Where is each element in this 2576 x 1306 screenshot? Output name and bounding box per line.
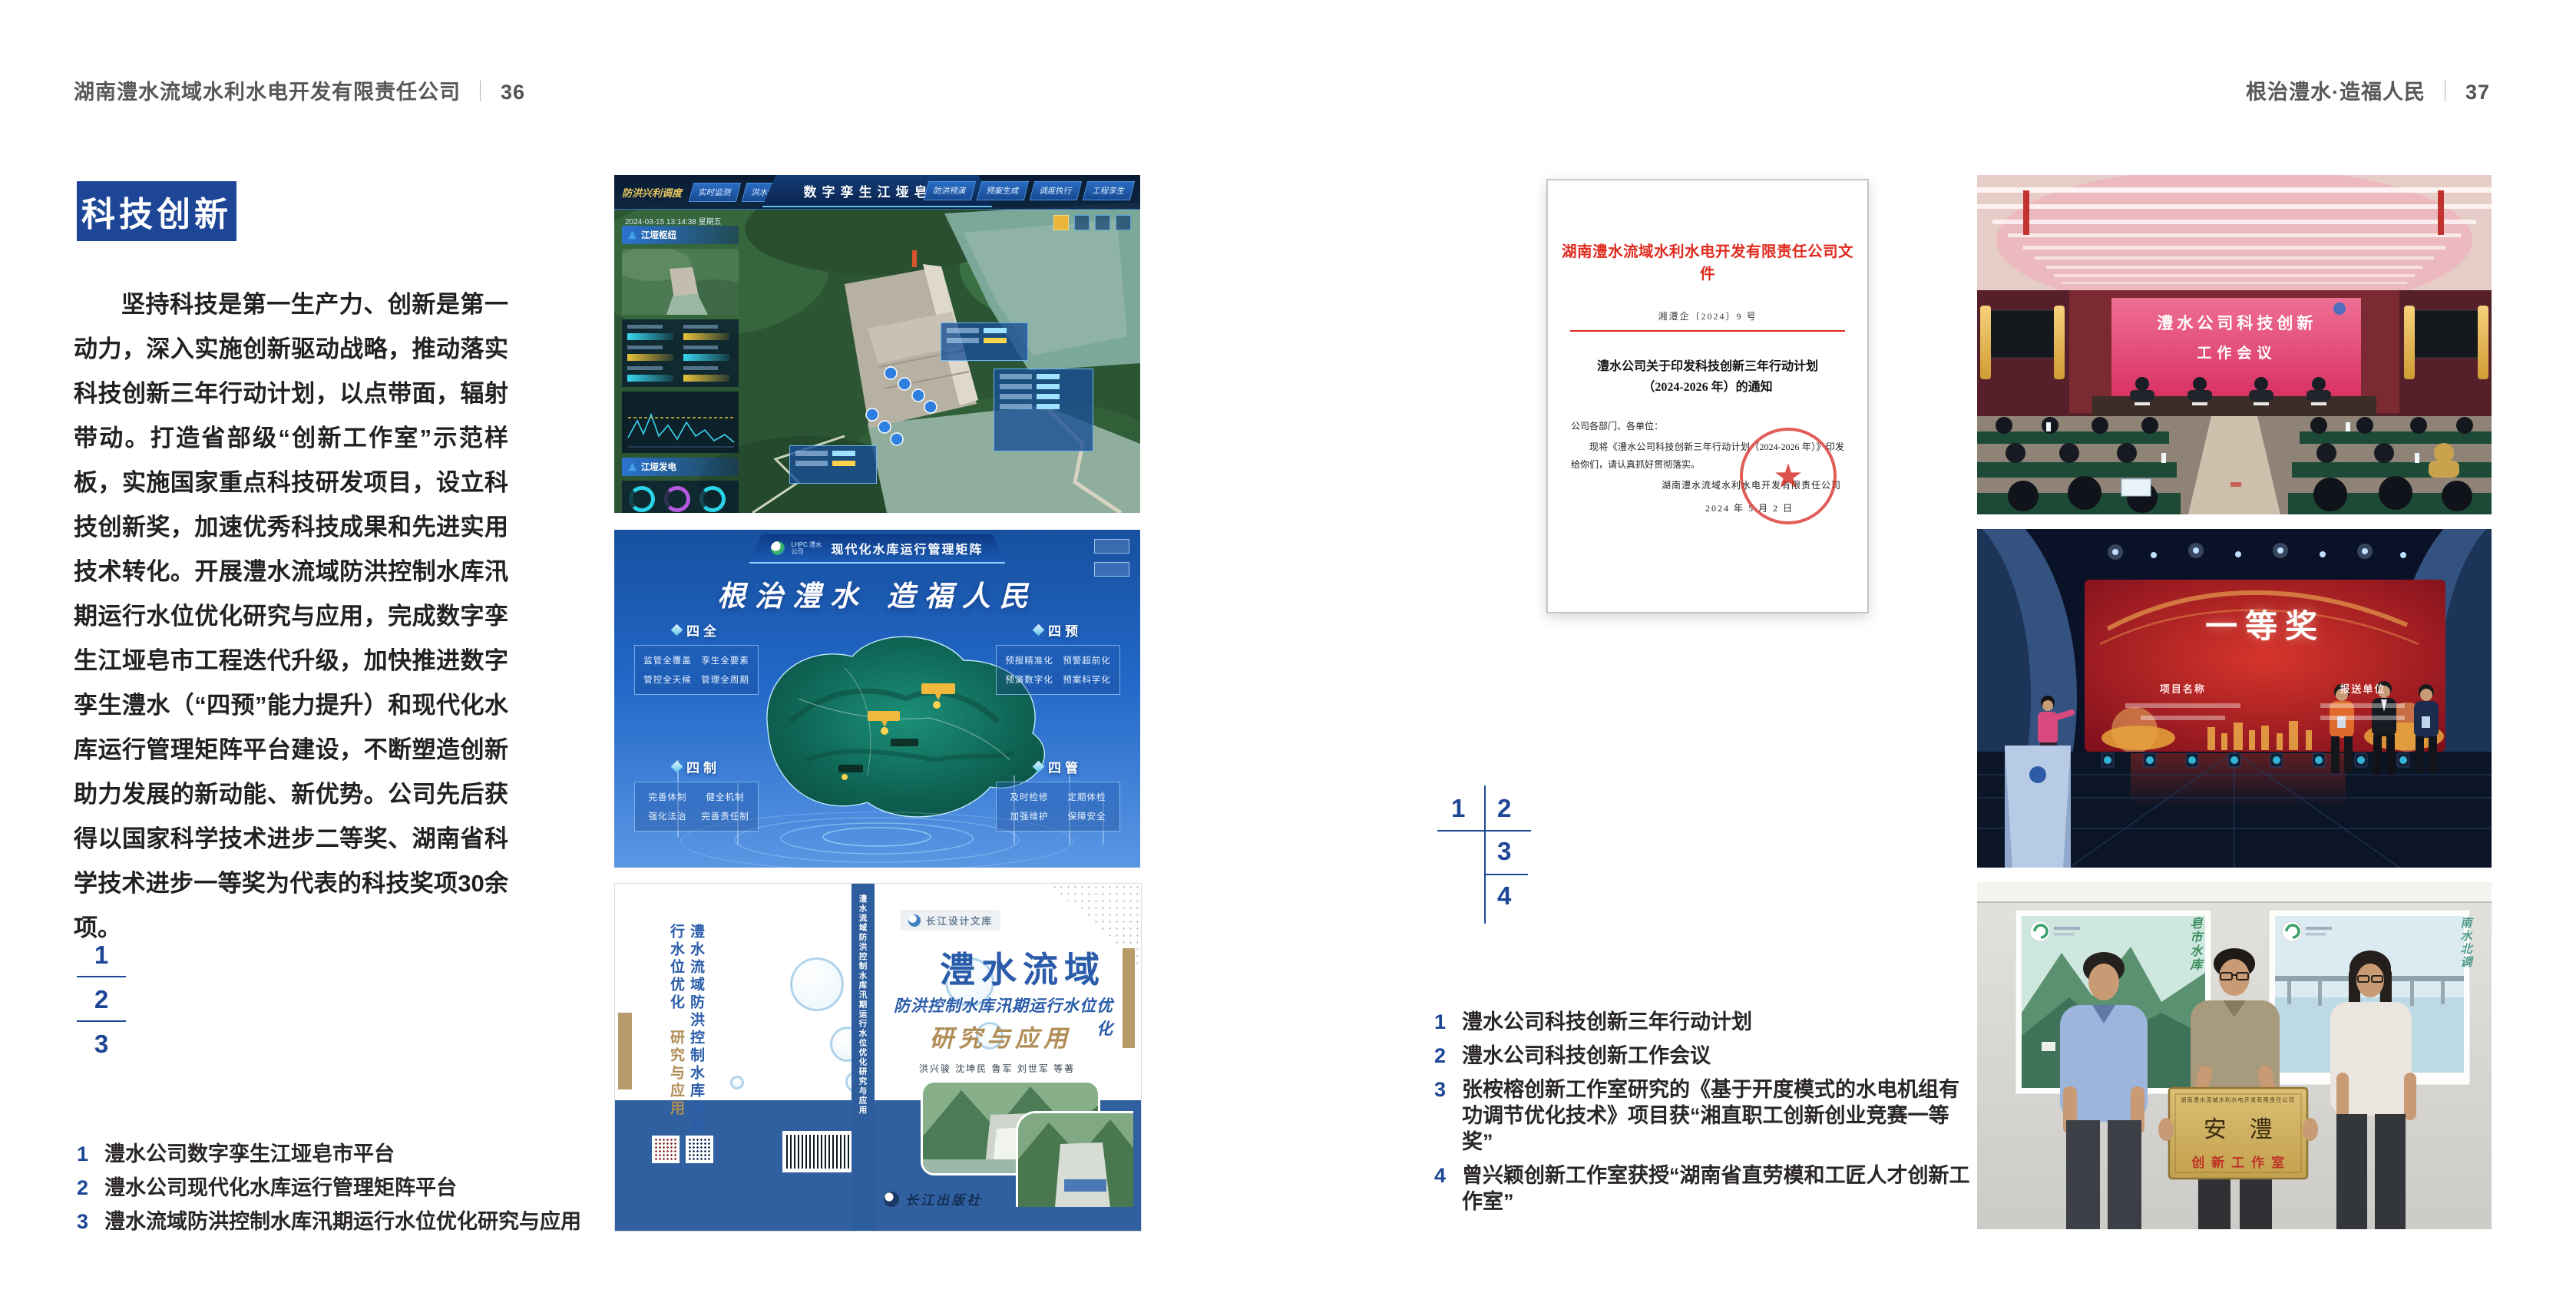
caption-number: 2 xyxy=(77,1175,104,1201)
gauge-icon xyxy=(664,486,690,512)
panel-items: 完善体制 健全机制 强化法治 完善责任制 xyxy=(634,782,759,832)
gauge-icon xyxy=(699,486,726,512)
panel-title: 四管 xyxy=(996,757,1120,776)
panel-item: 监管全覆盖 xyxy=(641,654,694,666)
dashboard-corner-label: 防洪兴利调度 xyxy=(622,185,682,200)
divider-line xyxy=(1437,830,1531,832)
section-badge: 科技创新 xyxy=(77,181,236,241)
cube-icon xyxy=(1033,624,1045,636)
caption-row: 3张桉榕创新工作室研究的《基于开度模式的水电机组有功调节优化技术》项目获“湘直职… xyxy=(1434,1076,1972,1155)
power-gauges xyxy=(622,481,739,513)
panel-item: 加强维护 xyxy=(1003,810,1056,822)
plaque-name: 安澧 xyxy=(2170,1110,2306,1144)
dashboard-left-column: 江垭枢纽 江垭发电 xyxy=(622,226,739,513)
spine-title: 澧水流域防洪控制水库汛期运行水位优化研究与应用 xyxy=(858,894,869,1116)
qr-code xyxy=(652,1136,680,1163)
panel-item: 及时检修 xyxy=(1003,791,1056,803)
document-number: 湘澧企〔2024〕9 号 xyxy=(1548,309,1867,322)
motto: 根治澧水·造福人民 xyxy=(2246,81,2426,104)
text-bar xyxy=(2125,703,2240,708)
panel-item: 预案科学化 xyxy=(1060,673,1113,686)
official-seal-icon xyxy=(1740,428,1837,524)
figure-number: 3 xyxy=(77,1029,126,1060)
dashboard-tabs-right: 防洪预演 预案生成 调度执行 工程孪生 xyxy=(926,181,1133,200)
plaque-text: 湖南澧水流域水利水电开发有限责任公司 安澧 创新工作室 xyxy=(2170,1090,2306,1179)
panel-item: 定期体检 xyxy=(1060,791,1113,803)
figure-number-stack-left: 1 2 3 xyxy=(77,940,126,1060)
matrix-title: 现代化水库运行管理矩阵 xyxy=(831,539,983,557)
screen-line2: 工作会议 xyxy=(2131,342,2343,362)
matrix-panel-siyu: 四预 预报精准化 预警超前化 预演数字化 预案科学化 xyxy=(996,620,1120,695)
subject-line2: （2024-2026 年）的通知 xyxy=(1642,381,1772,394)
figure-number: 2 xyxy=(77,984,126,1015)
series-name: 长江设计文库 xyxy=(926,913,993,927)
company-name: 湖南澧水流域水利水电开发有限责任公司 xyxy=(74,81,461,104)
screen-line1: 澧水公司科技创新 xyxy=(2131,311,2343,334)
qr-code xyxy=(686,1136,713,1163)
tab-flood-rehearsal: 防洪预演 xyxy=(924,181,976,200)
book-title-main: 澧水流域 xyxy=(884,942,1106,993)
matrix-panel-sizhi: 四制 完善体制 健全机制 强化法治 完善责任制 xyxy=(634,757,759,832)
stat-cell xyxy=(627,366,678,382)
tab-project-twin: 工程孪生 xyxy=(1083,181,1135,200)
lhpc-logo-text: LHPC 澧水公司 xyxy=(791,541,825,555)
panel-item: 预警超前化 xyxy=(1060,654,1113,666)
column-label: 项目名称 xyxy=(2160,683,2206,695)
panel-items: 及时检修 定期体检 加强维护 保障安全 xyxy=(996,782,1120,832)
panel-logo-icon xyxy=(628,463,637,471)
award-column-left: 项目名称 xyxy=(2125,681,2240,720)
red-rule xyxy=(1570,330,1845,332)
panel-item: 预报精准化 xyxy=(1003,654,1056,666)
caption-row: 4曾兴颖创新工作室获授“湖南省直劳模和工匠人才创新工作室” xyxy=(1434,1162,1972,1215)
page-header-left: 湖南澧水流域水利水电开发有限责任公司｜36 xyxy=(74,75,525,105)
matrix-header: LHPC 澧水公司 现代化水库运行管理矩阵 xyxy=(749,534,1006,564)
stat-cell xyxy=(683,346,734,361)
text-bar xyxy=(2320,716,2405,720)
series-badge: 长江设计文库 xyxy=(901,910,1000,931)
subject-line1: 澧水公司关于印发科技创新三年行动计划 xyxy=(1597,360,1818,373)
publisher-logo-icon xyxy=(884,1192,899,1207)
back-cover-title: 澧水流域防洪控制水库汛期运行水位优化 研究与应用 xyxy=(666,924,706,1154)
lead-paragraph: 坚持科技是第一生产力、创新是第一动力，深入实施创新驱动战略，推动落实科技创新三年… xyxy=(74,283,508,951)
figure-number: 3 xyxy=(1497,837,1511,866)
stat-cell xyxy=(627,346,678,361)
panel-item: 孪生全要素 xyxy=(699,654,752,666)
locate-icon xyxy=(1095,215,1110,230)
caption-row: 2澧水公司现代化水库运行管理矩阵平台 xyxy=(77,1175,607,1201)
divider-line xyxy=(77,976,126,977)
barcode xyxy=(782,1131,855,1172)
caption-row: 3澧水流域防洪控制水库汛期运行水位优化研究与应用 xyxy=(77,1208,607,1235)
document-red-title: 湖南澧水流域水利水电开发有限责任公司文件 xyxy=(1562,239,1853,283)
caption-text: 澧水流域防洪控制水库汛期运行水位优化研究与应用 xyxy=(104,1208,607,1235)
panel-item: 保障安全 xyxy=(1060,810,1113,822)
page-number-left: 36 xyxy=(501,81,525,104)
caption-text: 澧水公司数字孪生江垭皂市平台 xyxy=(104,1141,607,1167)
header-divider: ｜ xyxy=(2435,81,2456,104)
caption-text: 曾兴颖创新工作室获授“湖南省直劳模和工匠人才创新工作室” xyxy=(1462,1162,1972,1215)
cube-icon xyxy=(1033,761,1045,773)
plaque-subtitle: 创新工作室 xyxy=(2170,1152,2306,1171)
book-authors: 洪兴骏 沈坤民 鲁军 刘世军 等著 xyxy=(884,1062,1110,1075)
column-label: 报送单位 xyxy=(2340,683,2386,695)
poster-left-caption: 皂市水库 xyxy=(2185,917,2204,972)
stat-cell xyxy=(627,325,678,340)
back-title-text: 澧水流域防洪控制水库汛期运行水位优化 研究与应用 xyxy=(666,924,706,1154)
panel-item: 管控全天候 xyxy=(641,673,694,686)
publisher-name: 长江出版社 xyxy=(905,1189,982,1208)
cube-icon xyxy=(671,624,683,636)
page-header-right: 根治澧水·造福人民｜37 xyxy=(2246,75,2490,105)
bubble-decoration xyxy=(730,1076,744,1089)
book-spine: 澧水流域防洪控制水库汛期运行水位优化研究与应用 xyxy=(852,884,875,1231)
caption-number: 1 xyxy=(1434,1009,1462,1035)
text-bar xyxy=(2141,716,2225,720)
bubble-decoration xyxy=(790,957,844,1011)
panel-logo-icon xyxy=(628,231,637,240)
panel-title-text: 四管 xyxy=(1048,757,1082,776)
tan-bar xyxy=(1123,948,1135,1048)
dam-photo-small xyxy=(1016,1111,1133,1207)
document-subject: 澧水公司关于印发科技创新三年行动计划 （2024-2026 年）的通知 xyxy=(1561,356,1855,398)
book-title-tail: 研究与应用 xyxy=(884,1019,1072,1053)
magazine-spread: 湖南澧水流域水利水电开发有限责任公司｜36 根治澧水·造福人民｜37 科技创新 … xyxy=(0,0,2576,1306)
panel-title: 江垭枢纽 xyxy=(641,229,676,241)
matrix-panel-siguan: 四管 及时检修 定期体检 加强维护 保障安全 xyxy=(996,757,1120,832)
map-callout xyxy=(789,445,877,484)
water-level-chart xyxy=(622,392,739,453)
caption-text: 澧水公司现代化水库运行管理矩阵平台 xyxy=(104,1175,607,1201)
matrix-slogan: 根治澧水 造福人民 xyxy=(614,573,1140,614)
caption-number: 3 xyxy=(77,1208,104,1235)
panel-header-power: 江垭发电 xyxy=(622,458,739,476)
panel-item: 预演数字化 xyxy=(1003,673,1056,686)
caption-list-left: 1澧水公司数字孪生江垭皂市平台 2澧水公司现代化水库运行管理矩阵平台 3澧水流域… xyxy=(77,1141,607,1242)
figure-meeting-photo: 澧水公司科技创新 工作会议 xyxy=(1977,175,2492,514)
caption-number: 1 xyxy=(77,1141,104,1167)
panel-title-text: 四全 xyxy=(686,620,720,640)
stat-cell xyxy=(683,366,734,382)
lhpc-logo-icon xyxy=(771,541,785,555)
caption-row: 1澧水公司数字孪生江垭皂市平台 xyxy=(77,1141,607,1167)
caption-text: 澧水公司科技创新工作会议 xyxy=(1462,1043,1972,1069)
panel-title: 四制 xyxy=(634,757,759,776)
tab-realtime-monitor: 实时监测 xyxy=(689,183,741,202)
settings-icon xyxy=(1116,215,1131,230)
panel-item: 管理全周期 xyxy=(699,673,752,686)
header-divider: ｜ xyxy=(470,81,491,104)
figure-number: 1 xyxy=(77,940,126,970)
caption-text: 澧水公司科技创新三年行动计划 xyxy=(1462,1009,1972,1035)
text-bar xyxy=(2320,703,2405,708)
panel-header-hub: 江垭枢纽 xyxy=(622,226,739,244)
figure-plaque-photo: 皂市水库 南水北调 湖南澧水流域水利水电开发有限责任公司 安澧 创新工作室 xyxy=(1977,882,2492,1229)
panel-item: 强化法治 xyxy=(641,810,694,822)
panel-items: 预报精准化 预警超前化 预演数字化 预案科学化 xyxy=(996,645,1120,695)
caption-text: 张桉榕创新工作室研究的《基于开度模式的水电机组有功调节优化技术》项目获“湘直职工… xyxy=(1462,1076,1972,1155)
tab-plan-generation: 预案生成 xyxy=(977,181,1029,200)
figure-number: 1 xyxy=(1451,794,1465,823)
official-document: 湖南澧水流域水利水电开发有限责任公司文件 湘澧企〔2024〕9 号 澧水公司关于… xyxy=(1546,179,1869,613)
panel-item: 完善体制 xyxy=(641,791,694,803)
figure-matrix-platform: LHPC 澧水公司 现代化水库运行管理矩阵 根治澧水 造福人民 四全 监管全覆盖… xyxy=(614,530,1140,868)
back-title-tail: 研究与应用 xyxy=(668,1030,684,1118)
panel-title: 四预 xyxy=(996,620,1120,640)
panel-title-text: 四预 xyxy=(1048,620,1082,640)
caption-number: 4 xyxy=(1434,1162,1462,1215)
award-column-right: 报送单位 xyxy=(2320,681,2405,720)
meeting-screen-text: 澧水公司科技创新 工作会议 xyxy=(2131,311,2343,362)
caption-number: 2 xyxy=(1434,1043,1462,1069)
hub-stats-grid xyxy=(622,319,739,387)
tan-bar xyxy=(618,1013,632,1089)
caption-row: 2澧水公司科技创新工作会议 xyxy=(1434,1043,1972,1069)
panel-item: 完善责任制 xyxy=(699,810,752,822)
divider-line xyxy=(1484,785,1486,924)
dashboard-header: 防洪兴利调度 实时监测 洪水预报 防洪预警 数字孪生江垭皂市 防洪预演 预案生成… xyxy=(614,175,1140,210)
dashboard-toolbar-icons xyxy=(1053,215,1131,230)
fullscreen-button xyxy=(1094,539,1129,554)
award-screen-columns: 项目名称 报送单位 xyxy=(2085,681,2445,720)
panel-items: 监管全覆盖 孪生全要素 管控全天候 管理全周期 xyxy=(634,645,759,695)
map-callout xyxy=(994,369,1093,451)
caption-row: 1澧水公司科技创新三年行动计划 xyxy=(1434,1009,1972,1035)
divider-line xyxy=(77,1020,126,1022)
dashboard-timestamp: 2024-03-15 13:14:38 星期五 xyxy=(625,215,722,226)
matrix-panel-siquan: 四全 监管全覆盖 孪生全要素 管控全天候 管理全周期 xyxy=(634,620,759,695)
divider-line xyxy=(1485,874,1528,875)
caption-number: 3 xyxy=(1434,1076,1462,1155)
figure-book-cover: 澧水流域防洪控制水库汛期运行水位优化 研究与应用 澧水流域防洪控制水库汛期运行水… xyxy=(614,883,1142,1232)
plaque-org-line: 湖南澧水流域水利水电开发有限责任公司 xyxy=(2175,1096,2300,1104)
cube-icon xyxy=(671,761,683,773)
publisher-mark: 长江出版社 xyxy=(884,1189,1014,1208)
changjiang-design-logo-icon xyxy=(908,914,921,927)
figure-digital-twin-platform: 防洪兴利调度 实时监测 洪水预报 防洪预警 数字孪生江垭皂市 防洪预演 预案生成… xyxy=(614,175,1140,513)
hub-thumbnail xyxy=(622,249,739,315)
page-number-right: 37 xyxy=(2465,81,2490,104)
layers-icon xyxy=(1074,215,1090,230)
user-icon xyxy=(1053,215,1069,230)
tab-dispatch-execution: 调度执行 xyxy=(1030,181,1082,200)
panel-title: 江垭发电 xyxy=(641,461,676,473)
panel-title: 四全 xyxy=(634,620,759,640)
award-screen-title: 一等奖 xyxy=(2085,600,2445,647)
panel-item: 健全机制 xyxy=(699,791,752,803)
panel-title-text: 四制 xyxy=(686,757,720,776)
map-callout xyxy=(941,322,1028,361)
gauge-icon xyxy=(629,486,655,512)
caption-list-right: 1澧水公司科技创新三年行动计划 2澧水公司科技创新工作会议 3张桉榕创新工作室研… xyxy=(1434,1009,1972,1222)
stat-cell xyxy=(683,325,734,340)
figure-number: 2 xyxy=(1497,794,1511,823)
poster-right-caption: 南水北调 xyxy=(2458,917,2474,969)
figure-award-ceremony-photo: 一等奖 项目名称 报送单位 xyxy=(1977,529,2492,868)
figure-number: 4 xyxy=(1497,881,1511,911)
